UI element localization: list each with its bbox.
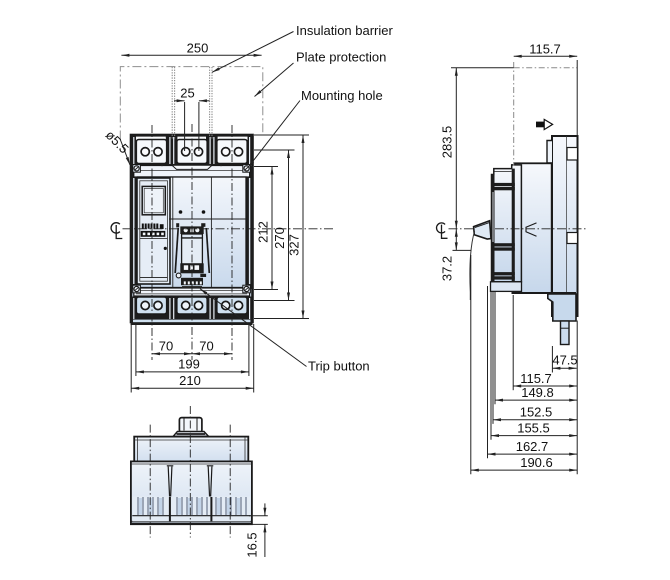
svg-text:270: 270 (272, 227, 287, 249)
svg-text:Plate protection: Plate protection (296, 50, 386, 65)
svg-text:149.8: 149.8 (521, 385, 554, 400)
svg-text:25: 25 (180, 86, 194, 101)
svg-text:155.5: 155.5 (517, 420, 550, 435)
svg-text:70: 70 (159, 339, 173, 354)
svg-text:210: 210 (179, 373, 201, 388)
svg-text:Insulation barrier: Insulation barrier (296, 23, 393, 38)
svg-text:115.7: 115.7 (529, 41, 561, 56)
svg-text:162.7: 162.7 (516, 439, 549, 454)
svg-text:Mounting hole: Mounting hole (301, 88, 383, 103)
svg-text:70: 70 (199, 339, 213, 354)
svg-text:Trip button: Trip button (308, 359, 370, 374)
svg-text:283.5: 283.5 (440, 126, 455, 159)
svg-text:199: 199 (178, 356, 200, 371)
svg-text:152.5: 152.5 (520, 405, 553, 420)
svg-text:16.5: 16.5 (245, 532, 260, 557)
svg-text:37.2: 37.2 (440, 256, 455, 281)
svg-text:115.7: 115.7 (520, 371, 552, 386)
svg-text:47.5: 47.5 (552, 353, 577, 368)
svg-text:212: 212 (256, 221, 271, 243)
svg-text:327: 327 (287, 234, 302, 256)
svg-text:250: 250 (187, 41, 209, 56)
svg-text:190.6: 190.6 (520, 455, 553, 470)
